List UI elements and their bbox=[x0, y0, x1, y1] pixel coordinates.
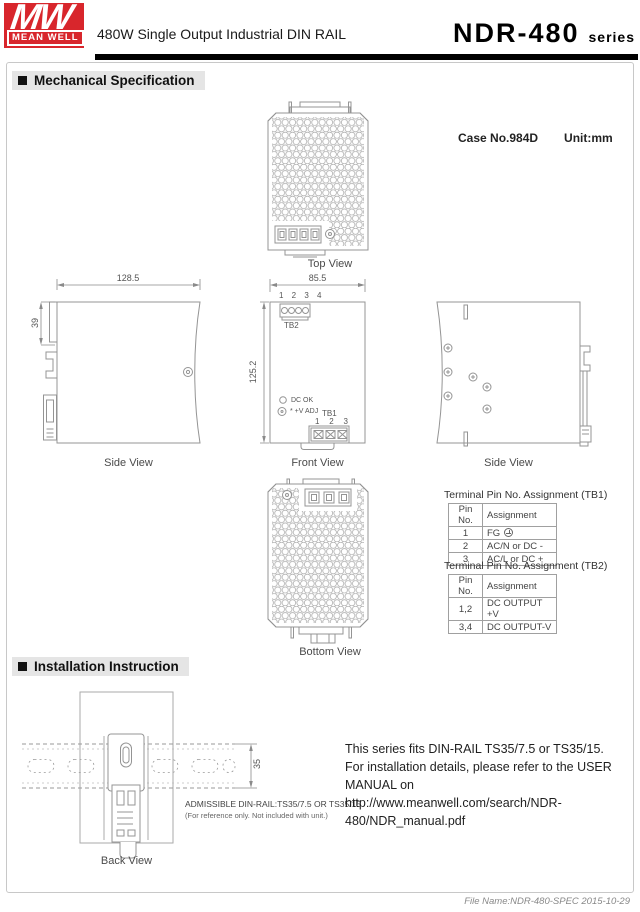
din-clip-plate bbox=[50, 302, 58, 342]
section-bullet-icon bbox=[18, 662, 27, 671]
side-view-right-drawing bbox=[430, 276, 615, 462]
tb2-pin-numbers: 1 2 3 4 bbox=[279, 291, 324, 300]
section-mechanical-title: Mechanical Specification bbox=[34, 73, 195, 88]
table-row: 3,4 DC OUTPUT-V bbox=[449, 621, 557, 634]
header-divider-bar bbox=[95, 54, 638, 60]
side-view-left-block: 128.5 39 Side View bbox=[28, 276, 233, 476]
back-view-label: Back View bbox=[80, 855, 173, 867]
section-installation-title: Installation Instruction bbox=[34, 659, 179, 674]
table-row: 2 AC/N or DC - bbox=[449, 540, 557, 553]
front-view-block: 85.5 125.2 1 2 3 4 TB2 DC OK * +V ADJ TB… bbox=[246, 276, 396, 476]
top-view-label: Top View bbox=[263, 258, 397, 270]
datasheet-page: MW MEAN WELL 480W Single Output Industri… bbox=[0, 0, 640, 912]
series-label: series bbox=[589, 29, 635, 45]
logo-brand-text: MEAN WELL bbox=[7, 30, 84, 46]
dc-ok-label: DC OK bbox=[291, 397, 313, 404]
table-row: 1 FG bbox=[449, 527, 557, 540]
col-assignment: Assignment bbox=[483, 504, 557, 527]
unit-note: Unit:mm bbox=[564, 131, 613, 145]
side-view-right-block: Side View bbox=[430, 276, 615, 476]
bottom-view-label: Bottom View bbox=[263, 646, 397, 658]
tb1-pin-2: 2 bbox=[329, 417, 333, 426]
case-number: Case No.984D bbox=[458, 131, 538, 145]
tb1-pin-table: Pin No. Assignment 1 FG 2 AC/N or DC - 3… bbox=[448, 503, 557, 566]
side-view-right-label: Side View bbox=[437, 457, 580, 469]
case-note: Case No.984D Unit:mm bbox=[458, 131, 613, 145]
back-view-drawing bbox=[20, 688, 330, 868]
footer-file-name: File Name:NDR-480-SPEC 2015-10-29 bbox=[464, 896, 630, 907]
note-line-2: For installation details, please refer t… bbox=[345, 758, 637, 794]
dim-85-5: 85.5 bbox=[270, 273, 365, 283]
model-title: NDR-480 series bbox=[453, 18, 635, 49]
tb1-pin-1: 1 bbox=[315, 417, 319, 426]
din-clip-hook-right bbox=[580, 346, 590, 371]
tb2-label: TB2 bbox=[284, 321, 299, 330]
bottom-view-block: Bottom View bbox=[263, 478, 397, 663]
table-row: 1,2 DC OUTPUT +V bbox=[449, 598, 557, 621]
meanwell-logo: MW MEAN WELL bbox=[4, 3, 84, 48]
dim-39: 39 bbox=[30, 313, 40, 333]
installation-note-text: This series fits DIN-RAIL TS35/7.5 or TS… bbox=[345, 740, 637, 830]
fg-assignment: FG bbox=[487, 528, 500, 539]
col-assignment: Assignment bbox=[483, 575, 557, 598]
dim-128-5: 128.5 bbox=[68, 273, 188, 283]
tb2-table-title: Terminal Pin No. Assignment (TB2) bbox=[444, 560, 607, 572]
dim-35: 35 bbox=[252, 754, 262, 774]
tb1-pin-numbers: 1 2 3 bbox=[315, 417, 348, 426]
table-header-row: Pin No. Assignment bbox=[449, 575, 557, 598]
admissible-din-rail-note: ADMISSIBLE DIN-RAIL:TS35/7.5 OR TS35/15 bbox=[185, 799, 361, 809]
dim-125-2: 125.2 bbox=[248, 357, 258, 387]
tb2-pin-table: Pin No. Assignment 1,2 DC OUTPUT +V 3,4 … bbox=[448, 574, 557, 634]
section-mechanical-specification: Mechanical Specification bbox=[12, 71, 205, 90]
side-view-left-label: Side View bbox=[57, 457, 200, 469]
reference-note: (For reference only. Not included with u… bbox=[185, 811, 328, 820]
top-view-block: Top View bbox=[263, 100, 397, 278]
back-view-block: 35 Back View bbox=[20, 688, 330, 873]
model-number: NDR-480 bbox=[453, 18, 580, 49]
section-bullet-icon bbox=[18, 76, 27, 85]
note-line-3-url: http://www.meanwell.com/search/NDR-480/N… bbox=[345, 794, 637, 830]
side-view-left-drawing bbox=[28, 276, 228, 462]
front-view-label: Front View bbox=[270, 457, 365, 469]
tb1-pin-3: 3 bbox=[344, 417, 348, 426]
rail-clip-lower bbox=[112, 785, 140, 842]
page-subtitle: 480W Single Output Industrial DIN RAIL bbox=[97, 26, 346, 42]
tb1-table-title: Terminal Pin No. Assignment (TB1) bbox=[444, 489, 607, 501]
din-clip-hook bbox=[46, 352, 57, 378]
table-header-row: Pin No. Assignment bbox=[449, 504, 557, 527]
ground-icon bbox=[504, 528, 513, 537]
top-view-drawing bbox=[263, 100, 397, 258]
section-installation-instruction: Installation Instruction bbox=[12, 657, 189, 676]
top-screw bbox=[326, 230, 335, 239]
v-adj-label: * +V ADJ bbox=[290, 408, 318, 415]
front-view-drawing bbox=[246, 276, 396, 462]
note-line-1: This series fits DIN-RAIL TS35/7.5 or TS… bbox=[345, 740, 637, 758]
col-pin-no: Pin No. bbox=[449, 575, 483, 598]
col-pin-no: Pin No. bbox=[449, 504, 483, 527]
bottom-screw bbox=[283, 491, 292, 500]
bottom-view-drawing bbox=[263, 478, 397, 646]
